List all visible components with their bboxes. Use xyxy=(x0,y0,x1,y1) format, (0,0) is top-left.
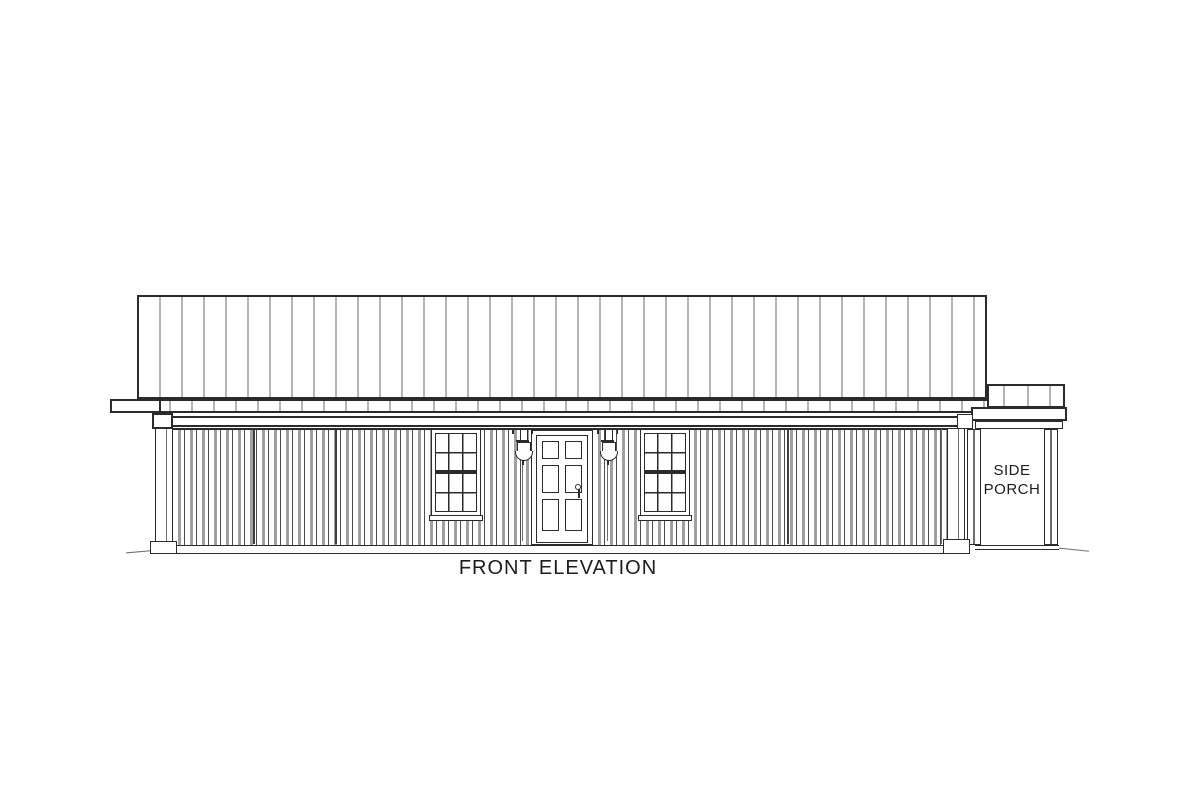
side-porch-subfascia xyxy=(975,421,1063,429)
front-door xyxy=(531,430,593,545)
ground-line-right xyxy=(1056,547,1089,551)
window-sill xyxy=(429,515,483,521)
door-panel xyxy=(565,441,582,459)
wall-lantern-icon-left xyxy=(512,428,533,541)
lower-sash xyxy=(435,473,477,512)
porch-roof-rib xyxy=(1049,386,1051,406)
side-porch-label-line2: PORCH xyxy=(977,480,1047,499)
siding-divider xyxy=(335,430,337,544)
eave-porch-junction-block xyxy=(957,414,973,429)
base-block-left xyxy=(150,541,177,554)
lantern-stem xyxy=(520,430,528,440)
window-right xyxy=(640,429,690,517)
door-handle-plate xyxy=(578,489,580,498)
lower-sash xyxy=(644,473,686,512)
door-panel xyxy=(542,441,559,459)
lantern-bracket-tick xyxy=(617,430,619,434)
siding-divider xyxy=(253,430,255,544)
lantern-bowl xyxy=(515,451,533,461)
elevation-drawing-sheet: SIDE PORCH FRONT ELEVATION xyxy=(0,0,1200,797)
eave-fascia-band xyxy=(160,399,987,413)
window-sill xyxy=(638,515,692,521)
window-left xyxy=(431,429,481,517)
upper-sash xyxy=(644,433,686,472)
lantern-bowl xyxy=(600,451,618,461)
side-porch-label-line1: SIDE xyxy=(977,461,1047,480)
frieze-band xyxy=(171,416,971,427)
base-block-right xyxy=(943,539,970,554)
eave-end-block-left xyxy=(110,399,161,413)
porch-roof-rib xyxy=(1003,386,1005,406)
lantern-bracket-tick xyxy=(512,430,514,434)
wall-lantern-icon-right xyxy=(597,428,618,541)
lantern-stem xyxy=(605,430,613,440)
porch-floor-line xyxy=(975,545,1059,550)
lantern-conduit-line xyxy=(607,465,608,541)
corner-board-right xyxy=(947,428,965,545)
side-porch-fascia xyxy=(971,407,1067,421)
eave-return-left xyxy=(152,413,173,429)
side-porch-label: SIDE PORCH xyxy=(977,461,1047,499)
upper-sash xyxy=(435,433,477,472)
porch-roof-rib xyxy=(1027,386,1029,406)
door-panel xyxy=(565,499,582,531)
siding-divider xyxy=(787,430,789,544)
main-roof xyxy=(137,295,987,399)
lantern-bracket-tick xyxy=(532,430,534,434)
corner-trim-line xyxy=(941,429,942,544)
door-panel xyxy=(542,465,559,493)
side-porch-roof xyxy=(987,384,1065,408)
lantern-bracket-tick xyxy=(597,430,599,434)
corner-board-left xyxy=(155,428,173,545)
skirt-board xyxy=(172,545,948,554)
drawing-title: FRONT ELEVATION xyxy=(438,557,678,580)
door-panel xyxy=(542,499,559,531)
lantern-conduit-line xyxy=(522,465,523,541)
